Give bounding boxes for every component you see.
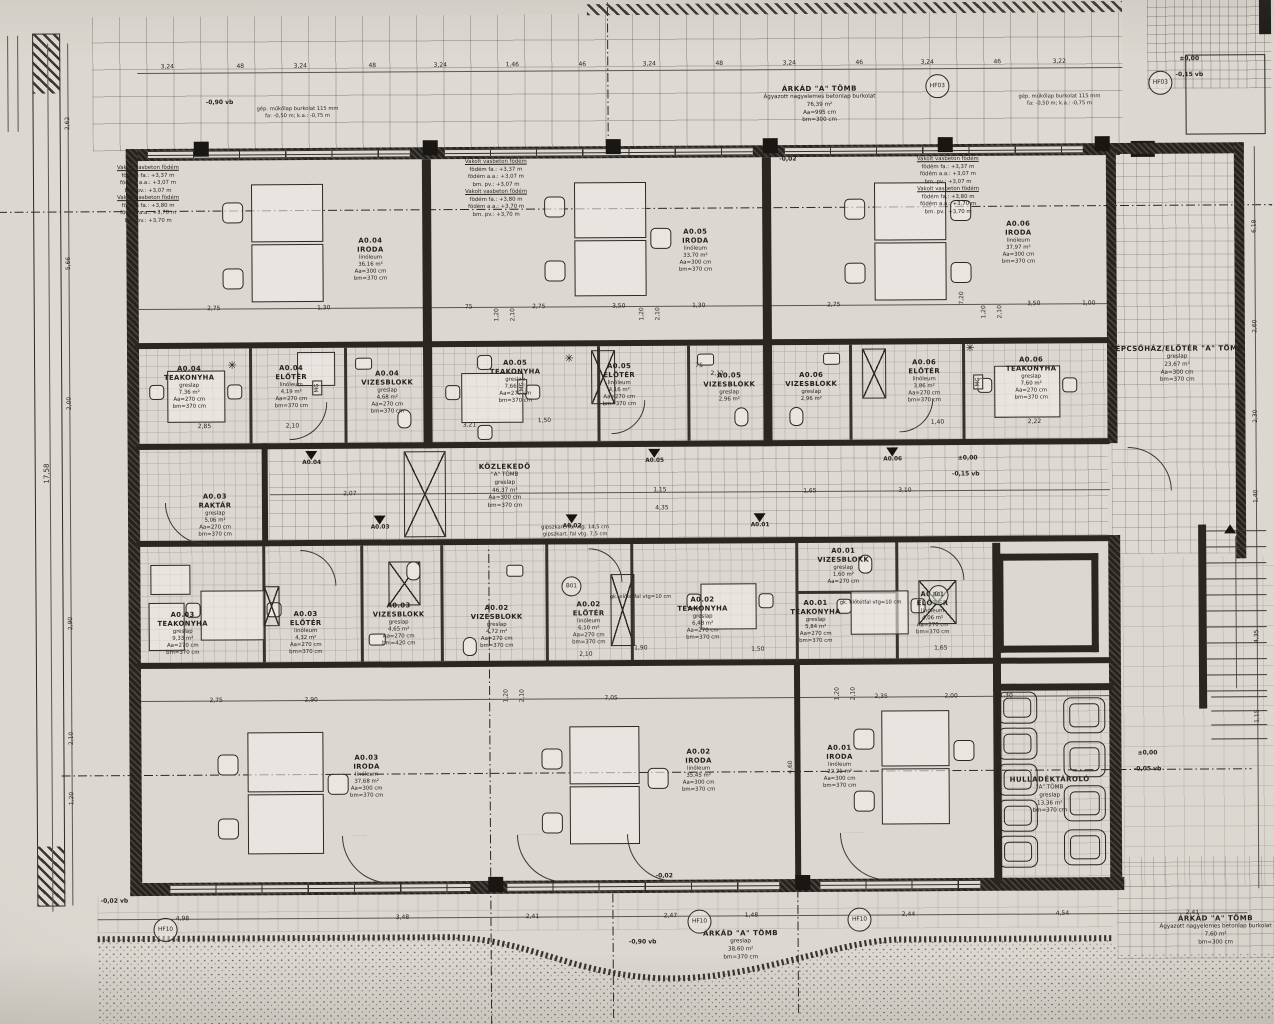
chair xyxy=(227,384,242,399)
dimension-label: 3,21 xyxy=(463,421,476,428)
room-label: A0.04TEAKONYHAgreslap7,36 m²Aa=270 cmbm=… xyxy=(164,365,215,411)
dimension-label: 2,75 xyxy=(532,303,545,310)
column xyxy=(763,138,778,153)
label-line: A0.04 xyxy=(302,460,321,466)
elevation-mark: -0,02 xyxy=(779,156,796,163)
label-line: ELŐTÉR xyxy=(274,373,307,382)
construction-note: gk. előtétfal vtg=10 cm xyxy=(610,594,672,601)
label-line: A0.01 xyxy=(790,599,841,608)
construction-note: gk. előtétfal vtg=10 cm xyxy=(840,599,902,606)
label-line: bm=370 cm xyxy=(289,649,322,656)
column xyxy=(795,875,810,890)
dimension-label: 1,40 xyxy=(931,419,944,426)
label-line: 37,68 m² xyxy=(350,778,383,785)
label-line: bm=370 cm xyxy=(603,401,636,408)
label-line: IRODA xyxy=(679,236,712,245)
label-line: födém a.a.: +3,07 m xyxy=(917,171,979,179)
dimension-label: 7,05 xyxy=(604,695,617,702)
window xyxy=(820,880,980,890)
elevation-mark: ±0,00 xyxy=(1138,749,1158,756)
label-line: TEAKONYHA xyxy=(157,619,208,628)
label-line: 2,96 m² xyxy=(785,395,837,402)
interior-wall xyxy=(996,554,1004,653)
label-line: ELŐTÉR xyxy=(907,367,940,376)
label-line: ÁRKÁD "A" TÖMB xyxy=(703,929,778,939)
label-line: bm=300 cm xyxy=(764,117,876,125)
label-line: bm=370 cm xyxy=(679,266,712,273)
column xyxy=(488,877,503,892)
desk xyxy=(248,794,324,854)
chair xyxy=(950,262,971,283)
label-line: Aa=300 cm xyxy=(350,785,383,792)
column xyxy=(1095,136,1110,151)
label-line: bm=370 cm xyxy=(1111,376,1244,384)
label-line: Aa=270 cm xyxy=(289,642,322,649)
dimension-label: 1,15 xyxy=(1254,710,1261,723)
dimension-label: 1,90 xyxy=(634,644,647,651)
area-label: ÁRKÁD "A" TÖMBgreslap38,60 m²bm=370 cm xyxy=(703,929,778,962)
chair xyxy=(844,263,865,284)
waste-bin xyxy=(1064,829,1106,865)
label-line: IRODA xyxy=(823,752,856,761)
room-label: A0.03TEAKONYHAgreslap9,33 m²Aa=270 cmbm=… xyxy=(157,611,208,657)
label-line: A0.06 xyxy=(785,371,837,380)
dimension-label: 46 xyxy=(578,61,586,68)
chair xyxy=(844,199,865,220)
label-line: bm=370 cm xyxy=(350,792,383,799)
interior-wall xyxy=(794,661,801,885)
label-line: bm=370 cm xyxy=(1002,258,1035,265)
dimension-label: 1,20 xyxy=(493,308,500,321)
label-line: gk. előtétfal vtg=10 cm xyxy=(610,594,672,601)
neighbor-block xyxy=(1185,54,1265,134)
dimension-label: 1,20 xyxy=(834,687,841,700)
dimension-label: 2,07 xyxy=(343,490,356,497)
dimension-label: 3,24 xyxy=(643,60,656,67)
dimension-label: 2,44 xyxy=(902,911,915,918)
dimension-label: 2,75 xyxy=(207,305,220,312)
mg-tag: MG xyxy=(312,380,322,395)
label-line: TEAKONYHA xyxy=(164,373,215,382)
dimension-line xyxy=(141,695,1111,702)
elevation-mark: -0,90 vb xyxy=(206,99,234,106)
outer-wall xyxy=(126,149,143,896)
section-marker: A0.05 xyxy=(645,449,664,464)
window xyxy=(507,881,779,892)
chair xyxy=(217,754,238,775)
elevation-mark: -0,02 xyxy=(656,872,673,879)
dimension-line xyxy=(7,36,9,132)
dimension-label: 3,24 xyxy=(434,62,447,69)
label-line: A0.01 xyxy=(823,744,856,753)
partition-wall xyxy=(962,344,966,439)
dimension-label: 2,90 xyxy=(304,696,317,703)
label-line: bm=370 cm xyxy=(823,782,856,789)
marker-triangle xyxy=(566,514,578,523)
chair xyxy=(853,729,874,750)
dimension-label: 2,10 xyxy=(519,689,526,702)
dimension-label: 4,35 xyxy=(655,504,668,511)
table xyxy=(850,590,908,634)
dimension-label: 1,50 xyxy=(751,646,764,653)
column xyxy=(194,142,209,157)
dimension-label: 2,10 xyxy=(68,732,75,745)
dimension-label: 7,20 xyxy=(958,291,965,304)
label-line: Aa=270 cm xyxy=(908,390,941,397)
dimension-label: 2,62 xyxy=(64,117,71,130)
dimension-label: 4,60 xyxy=(787,760,794,773)
label-line: bm=420 cm xyxy=(373,640,425,647)
dimension-label: 3,24 xyxy=(783,60,796,67)
arcade-strip-floor xyxy=(97,890,1112,933)
marker-triangle xyxy=(649,449,661,458)
label-line: A0.05 xyxy=(679,228,712,237)
outer-wall xyxy=(1106,143,1118,443)
shaft-box xyxy=(263,586,279,626)
desk xyxy=(247,732,323,792)
dimension-label: 1,30 xyxy=(317,304,330,311)
section-marker: A0.02 xyxy=(563,514,582,529)
slab-legend: Vakolt vasbeton födémfödém fa.: +3,37 mf… xyxy=(117,165,179,226)
label-line: A0.04 xyxy=(164,365,215,374)
floorplan-drawing: A0.04IRODAlinóleum36,16 m²Aa=300 cmbm=37… xyxy=(0,0,1274,1024)
label-line: bm=370 cm xyxy=(164,403,214,410)
waste-bin xyxy=(1063,741,1105,777)
reference-circle: HF10 xyxy=(847,908,871,932)
dimension-label: 1,30 xyxy=(999,692,1012,699)
label-line: A0.01 xyxy=(751,522,770,528)
room-label: A0.03VIZESBLOKKgreslap4,65 m²Aa=270 cmbm… xyxy=(373,601,425,647)
label-line: Vakolt vasbeton födém xyxy=(465,159,527,167)
reference-circle: HF03 xyxy=(925,74,949,98)
dimension-label: 4,35 xyxy=(1253,630,1260,643)
section-marker: A0.06 xyxy=(883,447,902,462)
dimension-label: 46 xyxy=(993,58,1001,65)
marker-triangle xyxy=(306,451,318,460)
chair xyxy=(953,740,974,761)
desk xyxy=(881,710,949,766)
dimension-label: 3,50 xyxy=(612,303,625,310)
construction-note: gép. műkőlap burkolat 115 mmfa: -0,50 m;… xyxy=(1019,93,1101,108)
dimension-label: 1,30 xyxy=(692,302,705,309)
hatch xyxy=(32,34,60,94)
elevation-mark: -0,05 vb xyxy=(1134,765,1162,772)
dimension-label: 3,48 xyxy=(396,914,409,921)
label-line: Vakolt vasbeton födém xyxy=(465,189,527,197)
dimension-label: 2,12 xyxy=(710,370,723,377)
label-line: A0.06 xyxy=(907,358,940,367)
room-label: A0.06VIZESBLOKKgreslap2,96 m² xyxy=(785,371,837,403)
dimension-label: 1,46 xyxy=(506,61,519,68)
label-line: A0.03 xyxy=(157,611,208,620)
label-line: IRODA xyxy=(354,245,387,254)
shaft-box xyxy=(862,348,886,398)
shaft-box xyxy=(610,574,634,646)
dimension-label: 4,98 xyxy=(176,915,189,922)
label-line: A0.05 xyxy=(602,362,635,371)
dimension-label: 48 xyxy=(715,60,723,67)
reference-circle: HF10 xyxy=(153,918,177,942)
label-line: A0.05 xyxy=(490,359,541,368)
area-label: ÁRKÁD "A" TÖMBÁgyazott nagyelemes betonl… xyxy=(1159,914,1271,947)
label-line: Vakolt vasbeton födém xyxy=(917,156,979,164)
mg-tag: MG xyxy=(973,374,983,389)
dimension-label: 1,15 xyxy=(653,486,666,493)
label-line: födém a.a.: +3,07 m xyxy=(117,180,179,188)
label-line: Vakolt vasbeton födém xyxy=(117,195,179,203)
desk xyxy=(874,242,946,300)
chair xyxy=(1062,377,1077,392)
room-label: A0.04ELŐTÉRlinóleum4,19 m²Aa=270 cmbm=37… xyxy=(274,364,308,410)
label-line: IRODA xyxy=(682,756,715,765)
dimension-label: 2,10 xyxy=(850,687,857,700)
room-label: A0.02IRODAlinóleum35,45 m²Aa=300 cmbm=37… xyxy=(682,748,716,794)
label-line: IRODA xyxy=(1002,228,1035,237)
room-label: A0.01IRODAlinóleum22,21 m²Aa=300 cmbm=37… xyxy=(823,744,857,790)
interior-wall xyxy=(993,683,1113,691)
dimension-label: 2,35 xyxy=(874,693,887,700)
dimension-label: 2,90 xyxy=(67,617,74,630)
elevation-mark: -0,15 vb xyxy=(952,470,980,477)
window xyxy=(148,149,410,159)
dimension-label: 3,24 xyxy=(294,63,307,70)
elevation-mark: ±0,00 xyxy=(1179,55,1199,62)
dimension-label: 2,47 xyxy=(664,912,677,919)
slab-legend: Vakolt vasbeton födémfödém fa.: +3,37 mf… xyxy=(465,159,527,220)
label-line: A0.03 xyxy=(289,610,322,619)
chair xyxy=(650,228,671,249)
dimension-label: 3,24 xyxy=(161,63,174,70)
label-line: IRODA xyxy=(350,762,383,771)
interior-wall xyxy=(762,157,773,446)
room-label: A0.05ELŐTÉRlinóleum4,16 m²Aa=270 cmbm=37… xyxy=(602,362,636,408)
dimension-label: 1,20 xyxy=(638,307,645,320)
label-line: bm=370 cm xyxy=(916,629,949,636)
dimension-label: 2,22 xyxy=(1028,418,1041,425)
elevation-mark: -0,02 vb xyxy=(101,898,129,905)
chair xyxy=(542,812,563,833)
desk xyxy=(150,565,190,595)
label-line: A0.02 xyxy=(572,600,605,609)
label-line: 22,21 m² xyxy=(823,768,856,775)
label-line: ELŐTÉR xyxy=(602,371,635,380)
toilet-fixture xyxy=(789,407,803,426)
label-line: gipszkart. fal vtg. 7,5 cm xyxy=(541,531,609,538)
chair xyxy=(328,774,349,795)
interior-wall xyxy=(996,553,1098,561)
vent-mark: ✳ xyxy=(564,352,573,365)
label-line: Aa=300 cm xyxy=(1002,251,1035,258)
label-line: bm=370 cm xyxy=(908,397,941,404)
dimension-label: 2,75 xyxy=(209,697,222,704)
dimension-label: 3,50 xyxy=(1027,300,1040,307)
sink-fixture xyxy=(355,358,372,370)
room-label: A0.05TEAKONYHAgreslap7,66 m²Aa=270 cmbm=… xyxy=(490,359,541,405)
label-line: Aa=270 cm xyxy=(275,396,308,403)
chair xyxy=(854,791,875,812)
marker-triangle xyxy=(887,447,899,456)
dimension-label: 17,58 xyxy=(43,464,51,484)
label-line: 37,97 m² xyxy=(1002,244,1035,251)
label-line: bm=370 cm xyxy=(791,637,841,644)
shaft-box xyxy=(404,451,447,537)
label-line: Aa=300 cm xyxy=(682,779,715,786)
chair xyxy=(218,818,239,839)
elevation-mark: -0,90 vb xyxy=(629,938,657,945)
floorplan-scan: A0.04IRODAlinóleum36,16 m²Aa=300 cmbm=37… xyxy=(0,0,1274,1024)
area-label: LÉPCSŐHÁZ/ELŐTÉR "A" TÖMBgreslap23,67 m²… xyxy=(1111,344,1244,384)
partition-wall xyxy=(344,348,348,443)
dimension-label: 1,00 xyxy=(1082,300,1095,307)
column xyxy=(938,137,953,152)
label-line: bm=370 cm xyxy=(1010,807,1090,815)
section-marker xyxy=(1224,524,1236,533)
label-line: A0.06 xyxy=(883,456,902,462)
room-label: A0.01VIZESBLOKKgreslap1,60 m²Aa=270 cm xyxy=(817,547,869,586)
dimension-label: 6,18 xyxy=(1251,220,1258,233)
label-line: A0.06 xyxy=(1002,220,1035,229)
dimension-label: 1,20 xyxy=(980,305,987,318)
label-line: VIZESBLOKK xyxy=(703,380,755,389)
dimension-label: 2,00 xyxy=(66,397,73,410)
label-line: ELŐTÉR xyxy=(572,609,605,618)
chair xyxy=(445,385,460,400)
label-line: bm=370 cm xyxy=(471,642,523,649)
desk xyxy=(574,240,646,296)
label-line: bm. pv.: +3,70 m xyxy=(917,209,979,217)
desk xyxy=(251,244,323,302)
dimension-label: 2,85 xyxy=(198,423,211,430)
dimension-label: 75 xyxy=(465,304,473,311)
label-line: A0.03 xyxy=(371,525,390,531)
dimension-label: 2,10 xyxy=(286,423,299,430)
partition-wall xyxy=(249,348,253,443)
label-line: A0.02 xyxy=(682,748,715,757)
dimension-label: 3,10 xyxy=(898,487,911,494)
chair xyxy=(477,425,492,440)
toilet-fixture xyxy=(734,407,748,426)
toilet-fixture xyxy=(406,561,420,580)
dimension-label: 1,65 xyxy=(934,645,947,652)
label-line: Aa=300 cm xyxy=(354,268,387,275)
chair xyxy=(758,593,773,608)
label-line: A0.05 xyxy=(645,458,664,464)
label-line: A0.04 xyxy=(274,364,307,373)
dimension-label: 1,48 xyxy=(745,912,758,919)
label-line: Vakolt vasbeton födém xyxy=(117,165,179,173)
dimension-label: 2,30 xyxy=(1252,410,1259,423)
desk xyxy=(569,726,639,784)
desk xyxy=(882,768,950,824)
marker-triangle xyxy=(754,513,766,522)
interior-wall xyxy=(1198,525,1207,709)
elevation-mark: -0,15 vb xyxy=(1176,71,1204,78)
dimension-label: 46 xyxy=(855,59,863,66)
chair xyxy=(648,768,669,789)
outer-wall xyxy=(1118,142,1244,154)
waste-bin xyxy=(997,728,1037,760)
label-line: Aa=300 cm xyxy=(823,775,856,782)
section-marker: A0.03 xyxy=(371,516,390,531)
dimension-label: 2,10 xyxy=(509,308,516,321)
label-line: bm=370 cm xyxy=(490,397,540,404)
label-line: 2,96 m² xyxy=(703,396,755,403)
label-line: A0.04 xyxy=(354,237,387,246)
dimension-label: 2,75 xyxy=(827,301,840,308)
sink-fixture xyxy=(823,353,840,365)
room-label: A0.02VIZESBLOKKgreslap4,72 m²Aa=270 cmbm… xyxy=(471,604,523,650)
label-line: gk. előtétfal vtg=10 cm xyxy=(840,599,902,606)
area-label: ÁRKÁD "A" TÖMBÁgyazott nagyelemes betonl… xyxy=(763,85,875,125)
dimension-label: 5,66 xyxy=(65,257,72,270)
chair xyxy=(223,268,244,289)
partition-wall xyxy=(687,346,691,441)
door-arc xyxy=(517,834,565,882)
label-line: LÉPCSŐHÁZ/ELŐTÉR "A" TÖMB xyxy=(1111,344,1244,354)
mg-tag: MG xyxy=(517,379,527,394)
label-line: RAKTÁR xyxy=(198,501,231,510)
dimension-label: 48 xyxy=(368,62,376,69)
chair xyxy=(544,260,565,281)
label-line: bm=300 cm xyxy=(1160,939,1272,947)
desk xyxy=(251,184,323,242)
dimension-label: 1,40 xyxy=(1252,490,1259,503)
label-line: bm=370 cm xyxy=(572,639,605,646)
room-label: A0.02ELŐTÉRlinóleum6,10 m²Aa=270 cmbm=37… xyxy=(572,600,606,646)
slab-legend: Vakolt vasbeton födémfödém fa.: +3,37 mf… xyxy=(917,156,979,217)
label-line: A0.06 xyxy=(1006,355,1057,364)
label-line: Aa=270 cm xyxy=(817,578,869,585)
marker-triangle xyxy=(1224,524,1236,533)
dimension-label: 1,20 xyxy=(68,792,75,805)
label-line: A0.04 xyxy=(361,369,413,378)
label-line: A0.02 xyxy=(471,604,523,613)
scan-artifact xyxy=(1259,0,1271,34)
chair xyxy=(149,385,164,400)
label-line: TEAKONYHA xyxy=(1006,364,1057,373)
label-line: 35,45 m² xyxy=(682,772,715,779)
label-line: VIZESBLOKK xyxy=(361,378,413,387)
room-label: A0.03RAKTÁRgreslap5,06 m²Aa=270 cmbm=370… xyxy=(198,492,232,538)
chair xyxy=(544,196,565,217)
area-label: HULLADÉKTÁROLÓ"A" TÖMBgreslap13,36 m²bm=… xyxy=(1010,775,1090,815)
label-line: bm=370 cm xyxy=(275,403,308,410)
label-line: TEAKONYHA xyxy=(490,367,541,376)
area-label: KÖZLEKEDŐ"A" TÖMBgreslap46,37 m²Aa=300 c… xyxy=(479,463,531,510)
chair xyxy=(222,202,243,223)
label-line: ELŐTÉR xyxy=(289,619,322,628)
label-line: Vakolt vasbeton födém xyxy=(917,186,979,194)
label-line: bm=370 cm xyxy=(1006,394,1056,401)
elevation-mark: ±0,00 xyxy=(958,454,978,461)
label-line: födém a.a.: +3,07 m xyxy=(465,174,527,182)
label-line: A0.03 xyxy=(350,754,383,763)
label-line: bm. pv.: +3,70 m xyxy=(117,218,179,226)
label-line: bm=370 cm xyxy=(354,275,387,282)
label-line: bm. pv.: +3,70 m xyxy=(465,212,527,220)
construction-note: gép. műkőlap burkolat 115 mmfa: -0,50 m;… xyxy=(257,106,339,121)
dimension-label: 1,20 xyxy=(503,689,510,702)
label-line: Aa=300 cm xyxy=(679,259,712,266)
dimension-label: 4,54 xyxy=(1056,910,1069,917)
label-line: A0.02 xyxy=(563,523,582,529)
section-marker: A0.01 xyxy=(751,513,770,528)
label-line: 33,70 m² xyxy=(679,252,712,259)
room-label: A0.05IRODAlinóleum33,70 m²Aa=300 cmbm=37… xyxy=(679,228,713,274)
room-tag-circle: B01 xyxy=(928,585,948,605)
room-label: A0.03ELŐTÉRlinóleum4,32 m²Aa=270 cmbm=37… xyxy=(289,610,323,656)
label-line: VIZESBLOKK xyxy=(373,610,425,619)
